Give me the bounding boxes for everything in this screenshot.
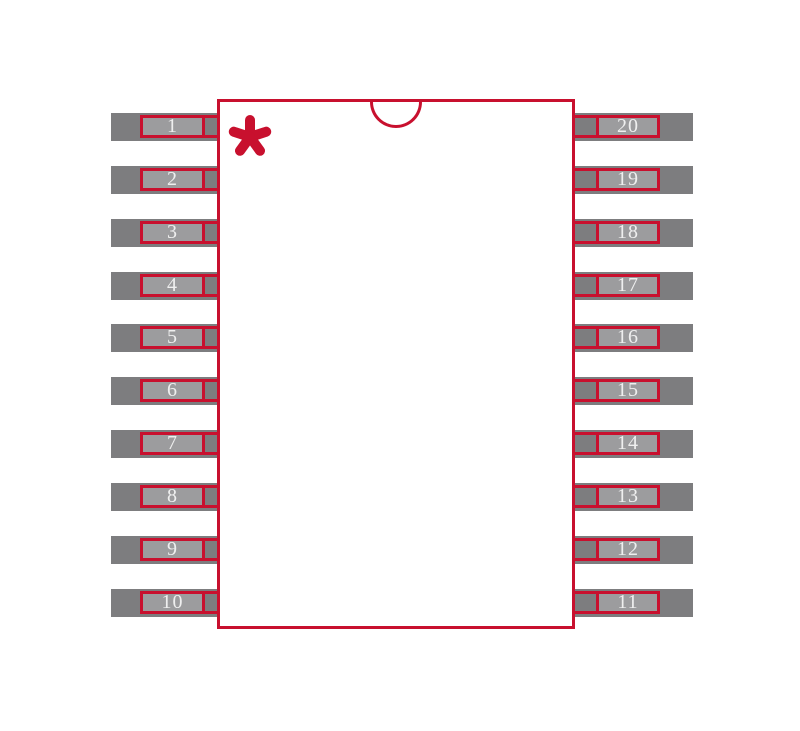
pin-bend-segment [575,541,596,558]
pin-number-label: 3 [143,224,202,241]
pin-outline: 12 [572,538,660,561]
pin-bend-segment [205,541,217,558]
pin-bend-segment [205,277,217,294]
pin-number-label: 6 [143,382,202,399]
pin-outline: 13 [572,485,660,508]
pin-number-label: 15 [599,382,657,399]
pin-number-label: 12 [599,541,657,558]
pin-pad: 20 [572,113,693,141]
pin-bend-segment [575,594,596,611]
package-body-outline [217,99,575,629]
pin-outline: 14 [572,432,660,455]
pin-bend-segment [205,488,217,505]
pin-number-label: 16 [599,329,657,346]
pin-pad: 8 [111,483,220,511]
pin-outline: 19 [572,168,660,191]
pin-outline: 20 [572,115,660,138]
pin-outline: 5 [140,326,220,349]
pin-number-label: 10 [143,594,202,611]
pin-1-marker-icon [227,114,273,160]
pin-number-label: 11 [599,594,657,611]
pin-number-label: 18 [599,224,657,241]
pin-pad: 11 [572,589,693,617]
pin-pad: 16 [572,324,693,352]
pin-bend-segment [205,435,217,452]
pin-outline: 4 [140,274,220,297]
pin-pad: 1 [111,113,220,141]
pin-pad: 3 [111,219,220,247]
pin-number-label: 1 [143,118,202,135]
pin-number-label: 7 [143,435,202,452]
pin-bend-segment [575,382,596,399]
pin-pad: 18 [572,219,693,247]
pin-pad: 2 [111,166,220,194]
pin-bend-segment [575,224,596,241]
pin-pad: 14 [572,430,693,458]
pin-bend-segment [205,382,217,399]
pin-outline: 1 [140,115,220,138]
pin-outline: 18 [572,221,660,244]
pin-pad: 6 [111,377,220,405]
pin-number-label: 20 [599,118,657,135]
pin-number-label: 13 [599,488,657,505]
pin-pad: 13 [572,483,693,511]
asterisk-arms [234,120,266,151]
footprint-diagram: 1 2 3 4 5 [0,0,800,731]
pin-number-label: 8 [143,488,202,505]
pin-outline: 6 [140,379,220,402]
pin-pad: 15 [572,377,693,405]
pin-pad: 10 [111,589,220,617]
pin-pad: 19 [572,166,693,194]
pin-number-label: 17 [599,277,657,294]
pin-pad: 9 [111,536,220,564]
pin-outline: 11 [572,591,660,614]
pin-pad: 4 [111,272,220,300]
pin-outline: 3 [140,221,220,244]
pin-bend-segment [205,224,217,241]
pin-outline: 9 [140,538,220,561]
pin-outline: 2 [140,168,220,191]
pin-outline: 16 [572,326,660,349]
pin-number-label: 5 [143,329,202,346]
pin-bend-segment [575,118,596,135]
pin-bend-segment [575,171,596,188]
pin-number-label: 9 [143,541,202,558]
pin-outline: 10 [140,591,220,614]
pin-outline: 8 [140,485,220,508]
pin-bend-segment [575,329,596,346]
pin-outline: 7 [140,432,220,455]
pin-bend-segment [205,118,217,135]
orientation-notch-icon [370,102,422,128]
pin-bend-segment [205,329,217,346]
pin-pad: 5 [111,324,220,352]
pin-outline: 15 [572,379,660,402]
pin-outline: 17 [572,274,660,297]
pin-number-label: 4 [143,277,202,294]
pin-number-label: 19 [599,171,657,188]
pin-number-label: 2 [143,171,202,188]
pin-pad: 12 [572,536,693,564]
pin-bend-segment [575,488,596,505]
pin-bend-segment [205,171,217,188]
pin-number-label: 14 [599,435,657,452]
pin-bend-segment [575,435,596,452]
pin-bend-segment [575,277,596,294]
pin-bend-segment [205,594,217,611]
pin-pad: 7 [111,430,220,458]
pin-pad: 17 [572,272,693,300]
